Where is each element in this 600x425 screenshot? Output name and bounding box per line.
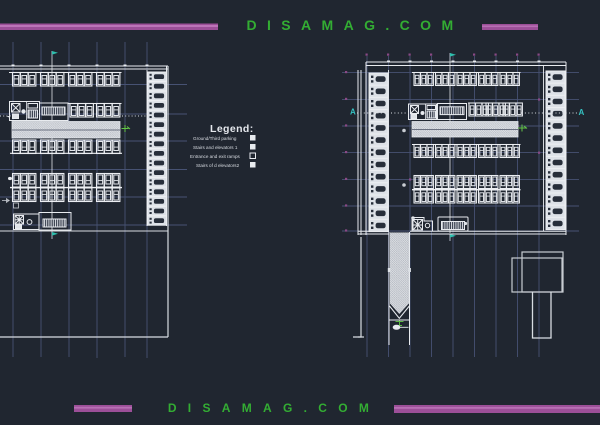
svg-text:Stairs and elevators 1: Stairs and elevators 1 xyxy=(193,145,238,150)
svg-text:DISAMAG.COM: DISAMAG.COM xyxy=(168,401,380,415)
svg-text:Entrance and exit ramps: Entrance and exit ramps xyxy=(190,154,240,159)
svg-text:DISAMAG.COM: DISAMAG.COM xyxy=(246,17,463,33)
svg-text:A: A xyxy=(579,108,585,117)
svg-text:Stairs of d elevators2: Stairs of d elevators2 xyxy=(196,163,240,168)
svg-text:A: A xyxy=(350,108,356,117)
svg-text:Ground/Third parking: Ground/Third parking xyxy=(193,136,237,141)
svg-text:Legend:: Legend: xyxy=(210,123,254,135)
